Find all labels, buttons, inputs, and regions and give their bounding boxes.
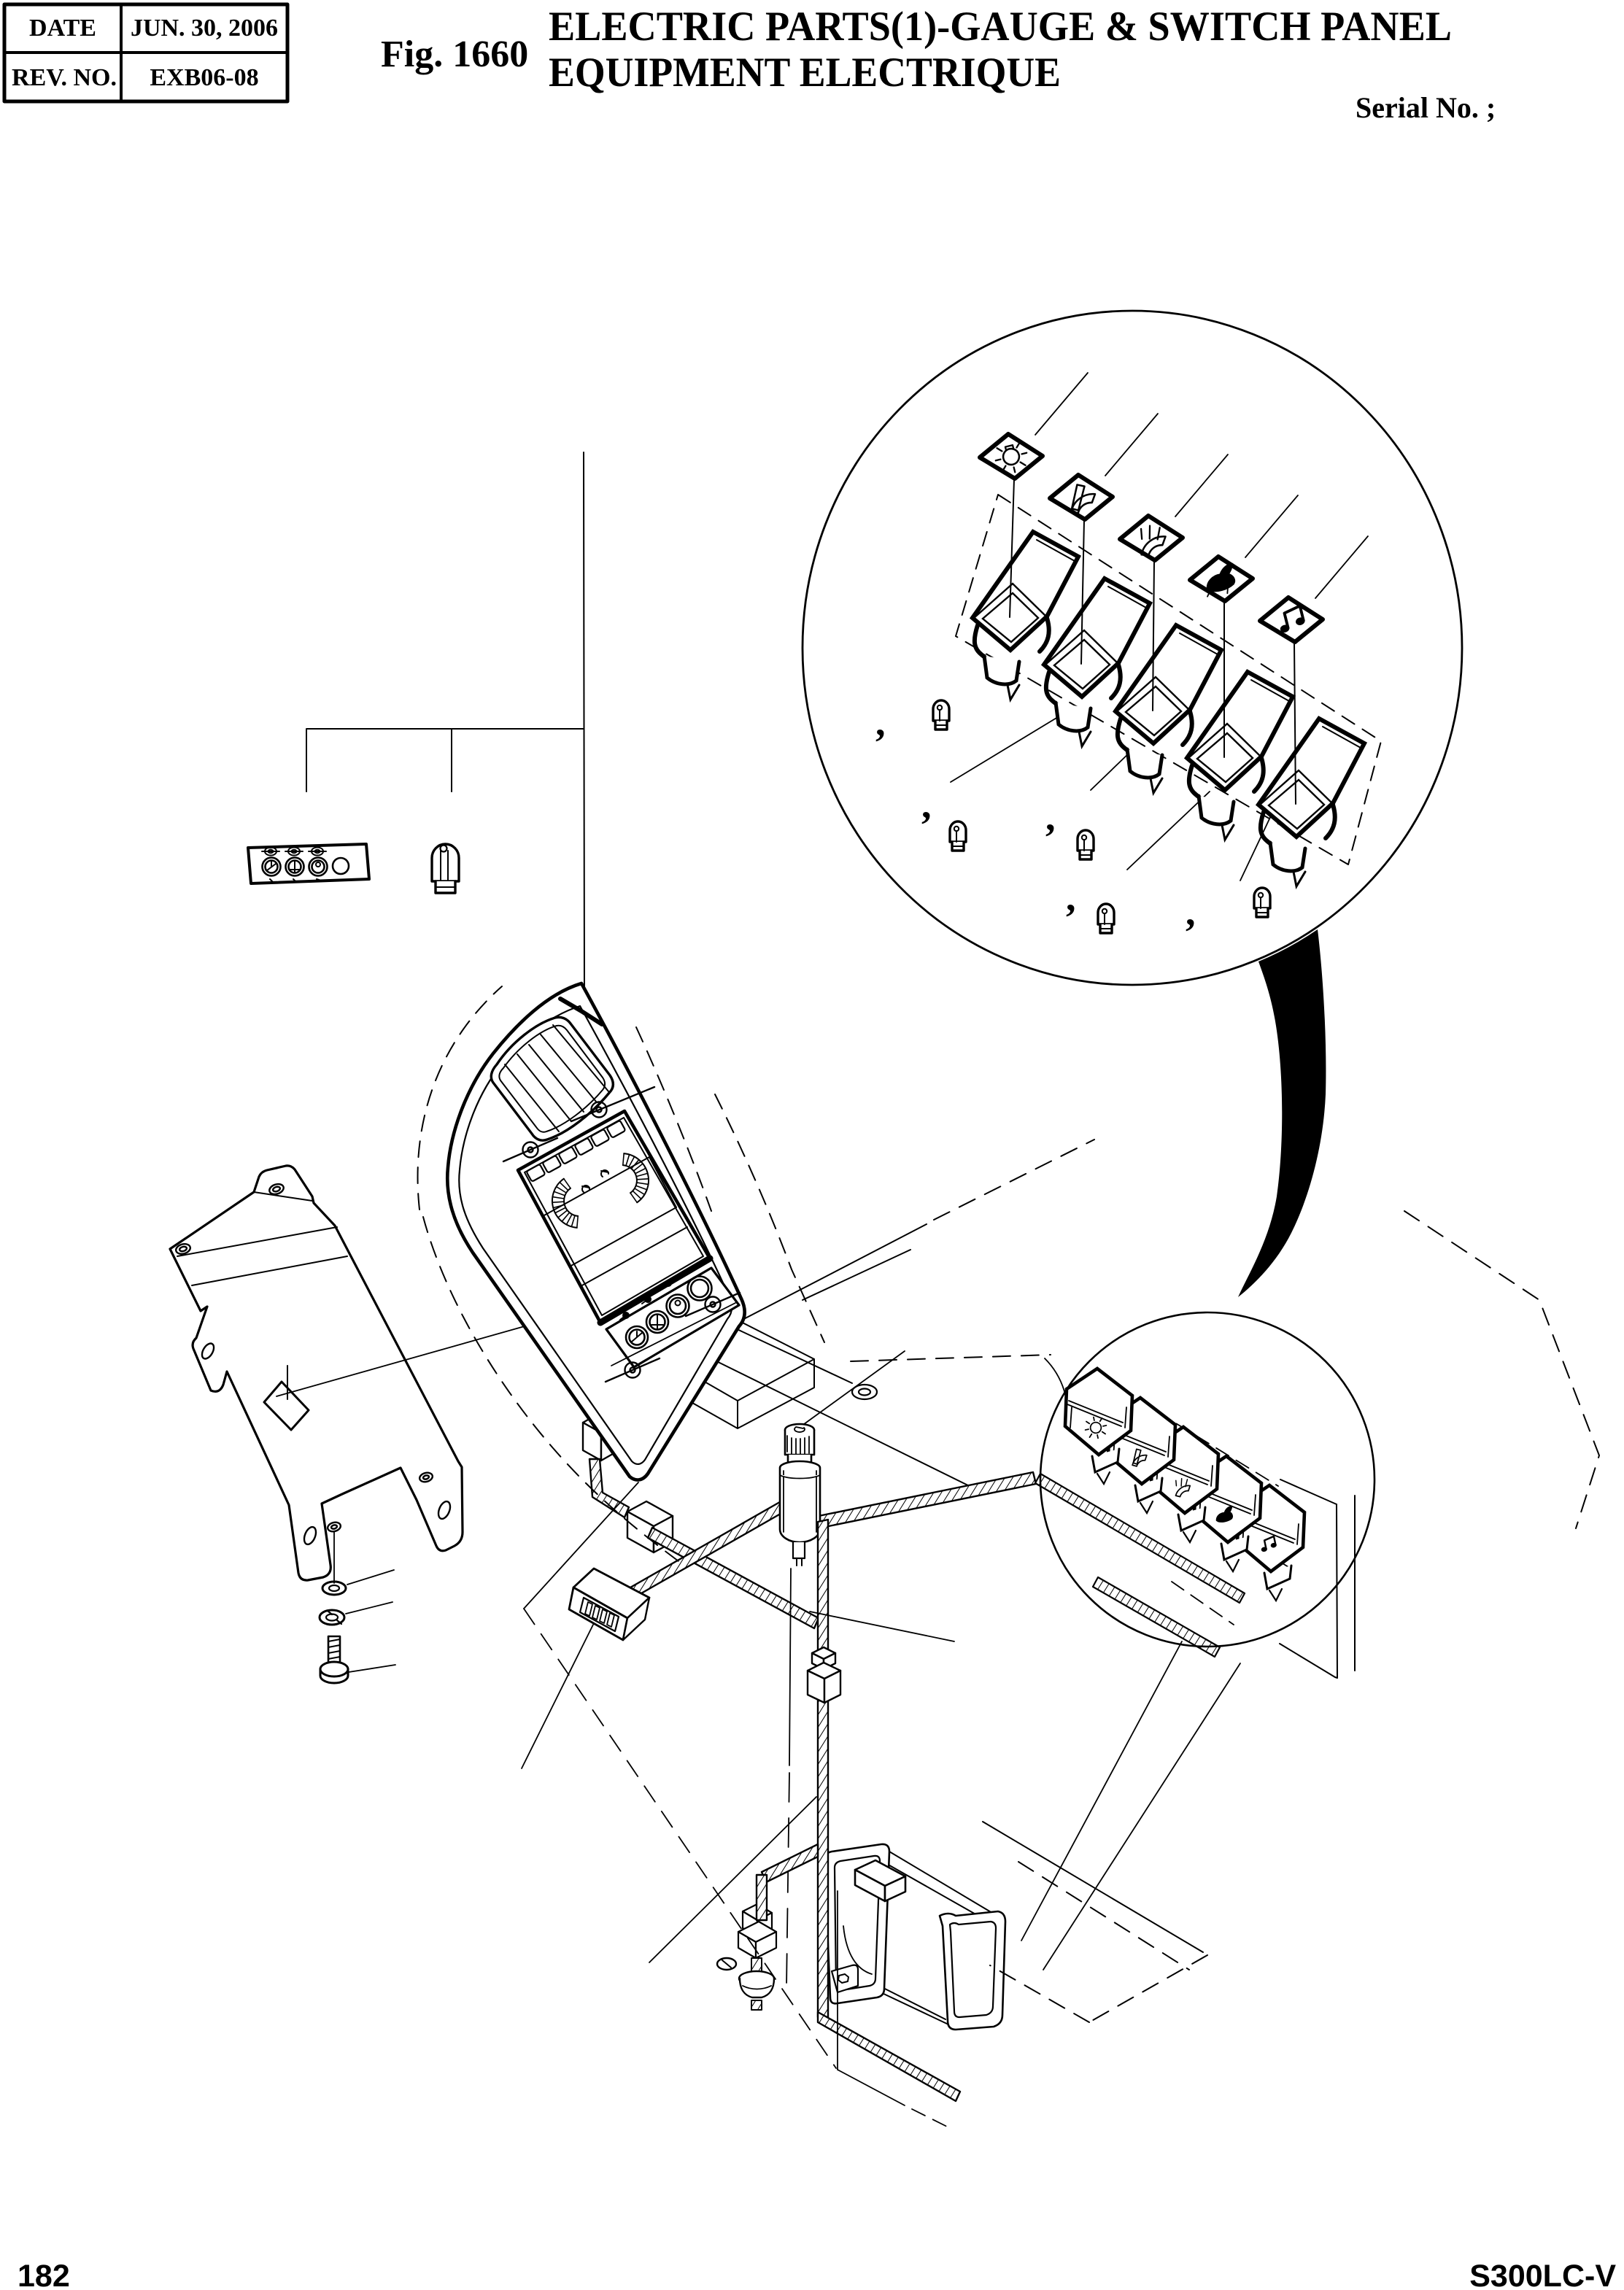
svg-text:EXB06-08: EXB06-08: [150, 64, 258, 91]
svg-text:,: ,: [1045, 795, 1056, 839]
svg-text:,: ,: [1066, 875, 1076, 919]
svg-text:,: ,: [1186, 890, 1196, 934]
svg-text:ELECTRIC PARTS(1)-GAUGE & SWIT: ELECTRIC PARTS(1)-GAUGE & SWITCH PANEL: [549, 4, 1452, 50]
svg-text:DATE: DATE: [29, 15, 96, 42]
svg-text:EQUIPMENT ELECTRIQUE: EQUIPMENT ELECTRIQUE: [549, 50, 1061, 96]
svg-text:S300LC-V: S300LC-V: [1469, 2259, 1616, 2290]
svg-text:REV. NO.: REV. NO.: [12, 64, 117, 91]
svg-text:182: 182: [18, 2259, 70, 2290]
svg-text:Serial No. ;: Serial No. ;: [1356, 91, 1496, 124]
svg-text:,: ,: [875, 700, 886, 744]
svg-text:JUN. 30, 2006: JUN. 30, 2006: [131, 15, 278, 42]
svg-text:,: ,: [921, 783, 932, 827]
svg-text:Fig. 1660: Fig. 1660: [381, 34, 528, 75]
